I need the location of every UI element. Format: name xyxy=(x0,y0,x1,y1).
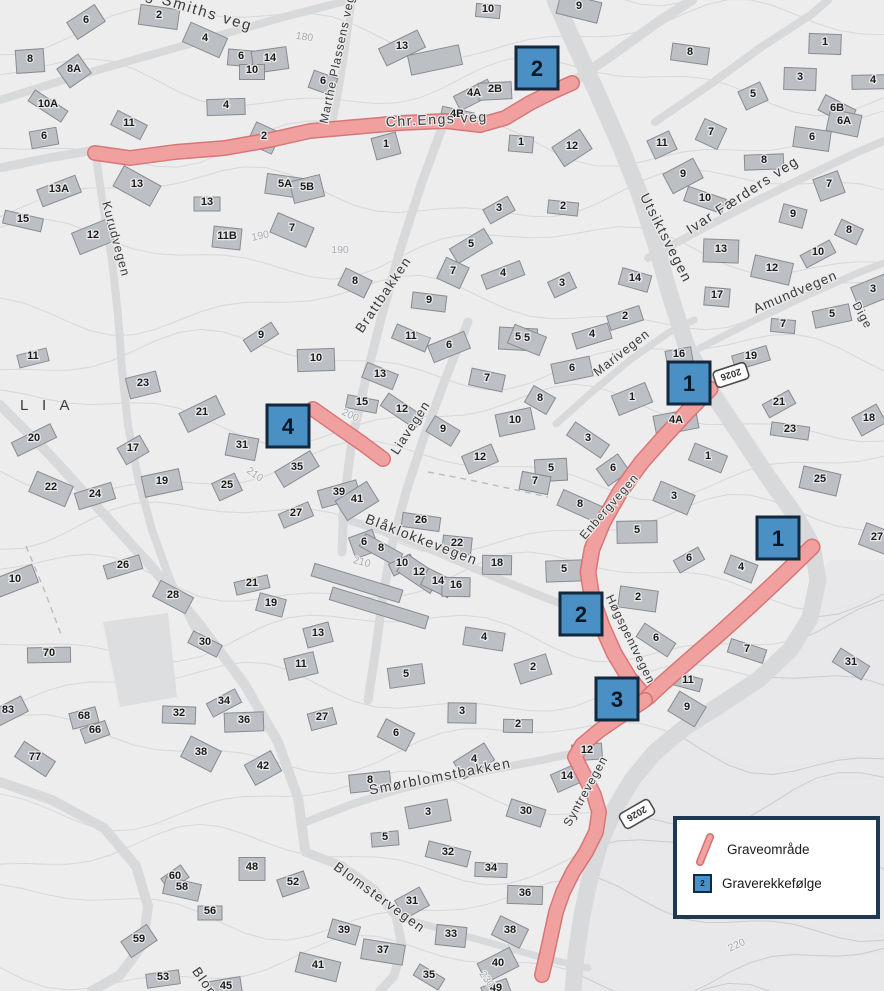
house-number-label: 9 xyxy=(426,294,432,306)
house-number-label: 2B xyxy=(488,83,502,95)
house-number-label: 26 xyxy=(117,559,129,571)
house-number-label: 6 xyxy=(809,131,815,143)
house-number-label: 8 xyxy=(352,275,358,287)
map-canvas: 2646141088A10A1142613A1313151211B5A5B711… xyxy=(0,0,884,991)
house-number-label: 9 xyxy=(440,423,446,435)
house-number-label: 9 xyxy=(576,0,582,12)
legend-label-graverekkefoelge: Graverekkefølge xyxy=(722,876,822,891)
house-number-label: 11 xyxy=(27,350,39,362)
house-number-label: 26 xyxy=(415,514,427,526)
house-number-label: 18 xyxy=(491,557,503,569)
house-number-label: 12 xyxy=(87,229,99,241)
house-number-label: 8 xyxy=(846,224,852,236)
house-number-label: 10 xyxy=(396,557,408,569)
house-number-label: 38 xyxy=(504,924,516,936)
house-number-label: 3 xyxy=(870,283,876,295)
house-number-label: 39 xyxy=(338,924,350,936)
house-number-label: 40 xyxy=(492,957,504,969)
house-number-label: 13 xyxy=(715,243,727,255)
house-number-label: 3 xyxy=(559,277,565,289)
house-number-label: 8 xyxy=(378,542,384,554)
house-number-label: 18 xyxy=(863,412,875,424)
house-number-label: 13A xyxy=(49,183,69,195)
house-number-label: 11 xyxy=(682,674,694,686)
house-number-label: 13 xyxy=(396,40,408,52)
house-number-label: 7 xyxy=(450,265,456,277)
house-number-label: 37 xyxy=(377,944,389,956)
house-number-label: 27 xyxy=(871,531,883,543)
house-number-label: 53 xyxy=(157,971,169,983)
house-number-label: 38 xyxy=(195,746,207,758)
house-number-label: 27 xyxy=(290,507,302,519)
sequence-marker-number: 4 xyxy=(282,414,295,439)
sequence-marker-number: 1 xyxy=(772,526,784,551)
house-number-label: 10 xyxy=(9,573,21,585)
house-number-label: 34 xyxy=(485,862,498,874)
house-number-label: 7 xyxy=(780,318,786,330)
house-number-label: 23 xyxy=(137,377,149,389)
house-number-label: 30 xyxy=(199,636,211,648)
house-number-label: 1 xyxy=(518,136,524,148)
house-number-label: 9 xyxy=(684,701,690,713)
sequence-marker-number: 2 xyxy=(575,602,587,627)
house-number-label: 35 xyxy=(291,461,303,473)
house-number-label: 21 xyxy=(773,396,785,408)
house-number-label: 8 xyxy=(687,46,693,58)
house-number-label: 42 xyxy=(257,760,269,772)
house-number-label: 16 xyxy=(450,579,462,591)
house-number-label: 13 xyxy=(131,178,143,190)
house-number-label: 6A xyxy=(837,115,851,127)
house-number-label: 7 xyxy=(708,126,714,138)
house-number-label: 1 xyxy=(629,391,635,403)
house-number-label: 2 xyxy=(156,9,162,21)
house-number-label: 4 xyxy=(481,631,488,643)
contour-elevation-label: 180 xyxy=(295,30,314,44)
house-number-label: 7 xyxy=(484,372,490,384)
house-number-label: 4 xyxy=(738,561,745,573)
house-number-label: 2 xyxy=(635,591,641,603)
house-number-label: 12 xyxy=(766,262,778,274)
house-number-label: 13 xyxy=(374,368,386,380)
house-number-label: 6 xyxy=(610,462,616,474)
house-number-label: 31 xyxy=(845,656,857,668)
house-number-label: 59 xyxy=(133,933,145,945)
house-number-label: 83 xyxy=(2,704,14,716)
house-number-label: 6 xyxy=(686,552,692,564)
house-number-label: 5 xyxy=(634,524,640,536)
legend-label-graveomraade: Graveområde xyxy=(727,842,810,857)
house-number-label: 9 xyxy=(258,329,264,341)
house-number-label: 12 xyxy=(566,140,578,152)
house-number-label: 19 xyxy=(156,475,168,487)
house-number-label: 3 xyxy=(459,705,465,717)
house-number-label: 2 xyxy=(515,718,521,730)
house-number-label: 5 xyxy=(515,331,521,343)
house-number-label: 4 xyxy=(870,74,877,86)
house-number-label: 41 xyxy=(312,959,324,971)
house-number-label: 31 xyxy=(406,895,418,907)
house-number-label: 4 xyxy=(500,267,507,279)
house-number-label: 10 xyxy=(482,3,494,15)
house-number-label: 31 xyxy=(236,439,248,451)
house-number-label: 6B xyxy=(830,102,844,114)
house-number-label: 4 xyxy=(223,99,230,111)
house-number-label: 1 xyxy=(822,36,828,48)
legend-item-graverekkefoelge: 2 Graverekkefølge xyxy=(693,874,822,893)
house-number-label: 25 xyxy=(814,473,826,485)
house-number-label: 48 xyxy=(246,861,258,873)
house-number-label: 14 xyxy=(264,52,277,64)
house-number-label: 52 xyxy=(287,876,299,888)
house-number-label: 13 xyxy=(312,627,324,639)
house-number-label: 41 xyxy=(351,493,363,505)
house-number-label: 1 xyxy=(383,138,389,150)
house-number-label: 6 xyxy=(238,50,244,62)
house-number-label: 6 xyxy=(83,14,89,26)
house-number-label: 8 xyxy=(761,154,767,166)
sequence-marker-number: 1 xyxy=(683,371,695,396)
house-number-label: 34 xyxy=(218,695,231,707)
house-number-label: 5 xyxy=(468,238,474,250)
house-number-label: 13 xyxy=(201,196,213,208)
house-number-label: 9 xyxy=(790,208,796,220)
house-number-label: 6 xyxy=(41,130,47,142)
house-number-label: 16 xyxy=(673,348,685,360)
house-number-label: 8A xyxy=(67,63,81,75)
house-number-label: 21 xyxy=(246,577,258,589)
house-number-label: 15 xyxy=(356,396,368,408)
house-number-label: 10 xyxy=(246,64,258,76)
house-number-label: 8 xyxy=(27,53,33,65)
house-number-label: 30 xyxy=(520,805,532,817)
house-number-label: 32 xyxy=(442,846,454,858)
house-number-label: 39 xyxy=(333,486,345,498)
house-number-label: 36 xyxy=(519,887,531,899)
house-number-label: 27 xyxy=(316,711,328,723)
house-number-label: 14 xyxy=(629,272,642,284)
house-number-label: 56 xyxy=(204,905,216,917)
house-number-label: 4A xyxy=(669,414,683,426)
house-number-label: 11 xyxy=(405,330,417,342)
house-number-label: 5B xyxy=(300,181,314,193)
house-number-label: 10 xyxy=(699,192,711,204)
house-number-label: 8 xyxy=(577,498,583,510)
house-number-label: 22 xyxy=(45,481,57,493)
legend-item-graveomraade: Graveområde xyxy=(693,832,810,866)
house-number-label: 4 xyxy=(589,328,596,340)
house-number-label: 11B xyxy=(217,230,237,242)
house-number-label: 5 xyxy=(750,88,756,100)
house-number-label: 7 xyxy=(826,178,832,190)
house-number-label: 36 xyxy=(238,714,250,726)
legend: Graveområde 2 Graverekkefølge xyxy=(673,816,880,919)
house-number-label: 24 xyxy=(89,488,102,500)
house-number-label: 11 xyxy=(656,137,668,149)
house-number-label: 19 xyxy=(265,597,277,609)
house-number-label: 10 xyxy=(310,352,322,364)
house-number-label: 3 xyxy=(425,806,431,818)
house-number-label: 14 xyxy=(561,770,574,782)
house-number-label: 10 xyxy=(509,414,521,426)
house-number-label: 6 xyxy=(569,362,575,374)
house-number-label: 3 xyxy=(496,202,502,214)
house-number-label: 6 xyxy=(393,727,399,739)
house-number-label: 19 xyxy=(745,350,757,362)
house-number-label: 9 xyxy=(680,168,686,180)
house-number-label: 5 xyxy=(561,563,567,575)
house-number-label: 7 xyxy=(532,475,538,487)
house-number-label: 77 xyxy=(29,751,41,763)
house-number-label: 66 xyxy=(89,724,101,736)
contour-elevation-label: 190 xyxy=(331,244,349,256)
house-number-label: 2 xyxy=(622,310,628,322)
house-number-label: 6 xyxy=(361,536,367,548)
house-number-label: 10A xyxy=(38,98,58,110)
house-number-label: 4 xyxy=(202,32,209,44)
house-number-label: 33 xyxy=(445,928,457,940)
house-number-label: 7 xyxy=(744,643,750,655)
house-number-label: 1 xyxy=(705,450,711,462)
house-number-label: 12 xyxy=(474,451,486,463)
house-number-label: 8 xyxy=(537,392,543,404)
house-number-label: 4A xyxy=(467,87,481,99)
house-number-label: 35 xyxy=(423,969,435,981)
house-number-label: 3 xyxy=(585,432,591,444)
house-number-label: 12 xyxy=(413,566,425,578)
house-number-label: 21 xyxy=(196,406,208,418)
house-number-label: 5 xyxy=(382,831,388,843)
house-number-label: 14 xyxy=(432,575,445,587)
house-number-label: 11 xyxy=(123,117,135,129)
house-number-label: 17 xyxy=(711,289,723,301)
house-number-label: 6 xyxy=(446,339,452,351)
house-number-label: 3 xyxy=(671,490,677,502)
sequence-box-sample-icon: 2 xyxy=(693,874,712,893)
sequence-marker-number: 2 xyxy=(531,56,543,81)
house-number-label: 12 xyxy=(396,403,408,415)
house-number-label: 3 xyxy=(797,71,803,83)
house-number-label: 2 xyxy=(261,130,267,142)
dig-area-sample-icon xyxy=(693,832,717,866)
house-number-label: 5 xyxy=(403,668,409,680)
house-number-label: 15 xyxy=(17,213,29,225)
building xyxy=(852,75,884,90)
house-number-label: 23 xyxy=(784,423,796,435)
house-number-label: 7 xyxy=(289,222,295,234)
house-number-label: 45 xyxy=(220,980,232,991)
house-number-label: 11 xyxy=(295,658,307,670)
house-number-label: 5 xyxy=(548,462,554,474)
house-number-label: 58 xyxy=(176,881,188,893)
area-label: L I A xyxy=(20,397,74,414)
house-number-label: 5 xyxy=(524,332,530,344)
house-number-label: 28 xyxy=(167,589,179,601)
house-number-label: 5 xyxy=(829,308,835,320)
house-number-label: 2 xyxy=(530,661,536,673)
house-number-label: 2 xyxy=(560,200,566,212)
house-number-label: 12 xyxy=(581,744,593,756)
house-number-label: 10 xyxy=(812,246,824,258)
house-number-label: 32 xyxy=(173,707,185,719)
house-number-label: 70 xyxy=(43,647,55,659)
house-number-label: 68 xyxy=(78,710,90,722)
house-number-label: 17 xyxy=(127,442,139,454)
house-number-label: 5A xyxy=(278,178,292,190)
house-number-label: 6 xyxy=(653,632,659,644)
house-number-label: 25 xyxy=(221,479,233,491)
house-number-label: 20 xyxy=(28,432,40,444)
sequence-marker-number: 3 xyxy=(611,687,623,712)
